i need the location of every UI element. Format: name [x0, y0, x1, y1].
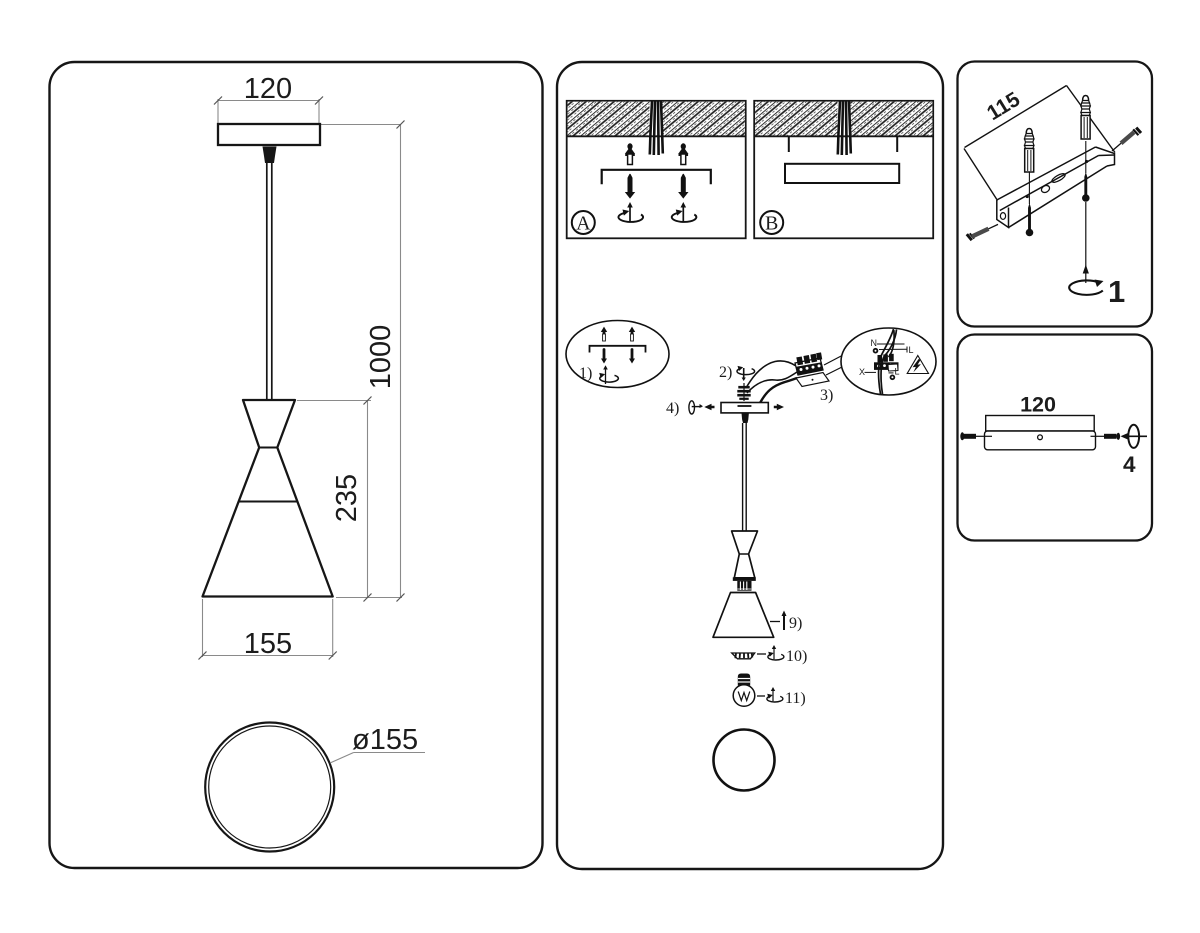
svg-text:X: X — [859, 367, 865, 377]
svg-text:2): 2) — [719, 364, 732, 381]
svg-text:1000: 1000 — [365, 325, 397, 390]
svg-text:9): 9) — [789, 615, 802, 632]
svg-text:10): 10) — [786, 648, 807, 665]
svg-text:B: B — [765, 213, 778, 235]
svg-text:4): 4) — [666, 400, 679, 417]
svg-text:235: 235 — [331, 474, 363, 522]
svg-text:1): 1) — [579, 365, 592, 382]
svg-text:L: L — [895, 367, 900, 377]
svg-text:120: 120 — [1020, 393, 1056, 417]
svg-text:4: 4 — [1123, 452, 1136, 477]
svg-text:155: 155 — [244, 628, 292, 660]
svg-text:N: N — [871, 338, 878, 348]
svg-text:L: L — [909, 345, 914, 355]
svg-text:3): 3) — [820, 387, 833, 404]
svg-text:1: 1 — [1108, 274, 1125, 309]
svg-text:ø155: ø155 — [352, 724, 418, 756]
svg-text:A: A — [576, 213, 591, 235]
svg-text:11): 11) — [785, 690, 806, 707]
